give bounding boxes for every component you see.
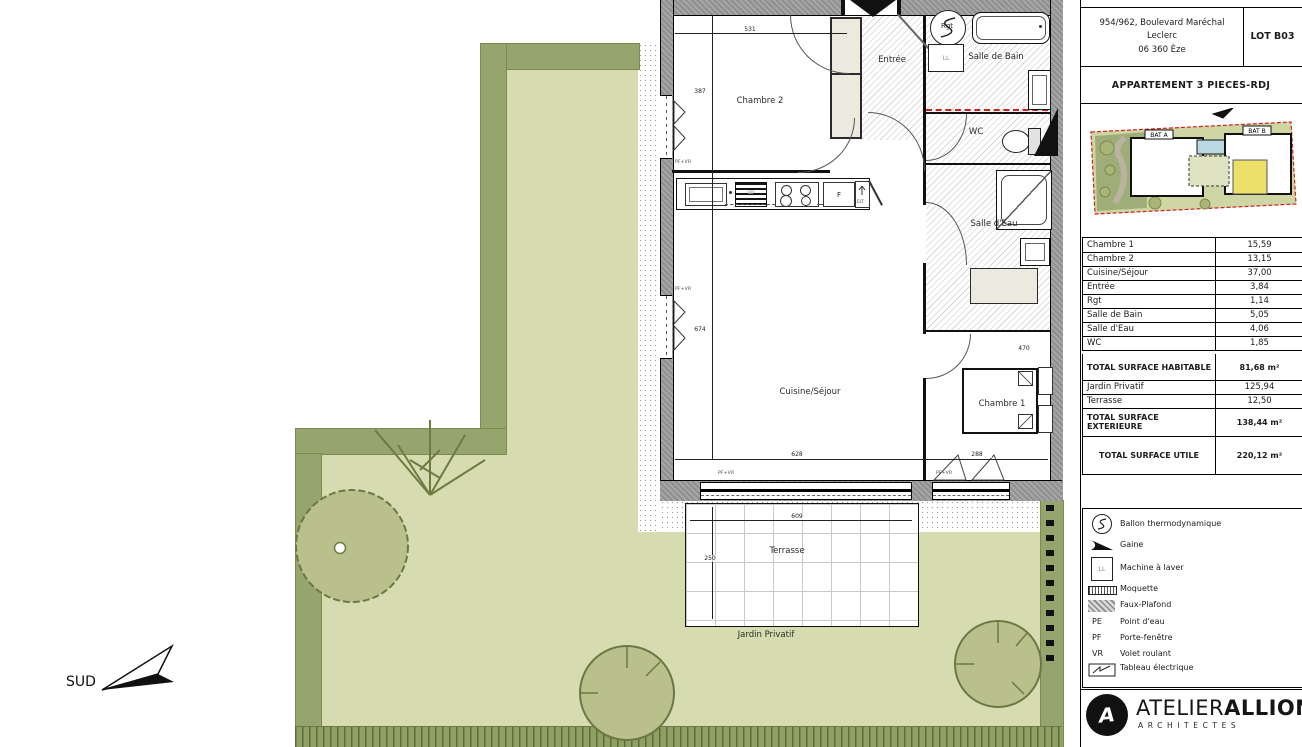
wc-label: WC bbox=[956, 127, 996, 137]
total-utile-row: TOTAL SURFACE UTILE220,12 m² bbox=[1082, 436, 1302, 475]
partition-wc-bottom bbox=[925, 163, 1050, 165]
cuisine-sejour-label: Cuisine/Séjour bbox=[730, 387, 890, 397]
surface-row: WC1,85 bbox=[1082, 336, 1302, 351]
dim-chambre1-w: 288 bbox=[962, 451, 992, 458]
window-tag: PF+VR bbox=[675, 160, 691, 165]
room-area: 12,50 bbox=[1215, 394, 1302, 408]
electrical-panel-legend-icon bbox=[1088, 663, 1116, 677]
legend-label: Porte-fenêtre bbox=[1120, 633, 1173, 642]
legend-label: Gaine bbox=[1120, 540, 1143, 549]
room-name: Salle d'Eau bbox=[1083, 322, 1215, 336]
compass-label: SUD bbox=[66, 674, 96, 690]
surface-row: Chambre 213,15 bbox=[1082, 252, 1302, 267]
shutter-icon bbox=[673, 100, 687, 152]
shutter-icon bbox=[673, 300, 687, 352]
moquette-legend-icon bbox=[1088, 586, 1117, 595]
room-name: Salle de Bain bbox=[1083, 308, 1215, 322]
salle-deau-label: Salle d'Eau bbox=[944, 219, 1044, 229]
dim-line bbox=[675, 33, 847, 34]
entrance-arrow-icon bbox=[850, 0, 896, 17]
toilet bbox=[1002, 130, 1030, 153]
surface-row: Salle d'Eau4,06 bbox=[1082, 322, 1302, 337]
room-area: 4,06 bbox=[1215, 322, 1302, 336]
apartment-title: APPARTEMENT 3 PIECES-RDJ bbox=[1080, 72, 1302, 98]
address-line1: 954/962, Boulevard Maréchal Leclerc bbox=[1086, 17, 1238, 44]
burner-icon bbox=[801, 196, 811, 206]
north-arrow-icon bbox=[1213, 108, 1233, 118]
kitchen-sink bbox=[685, 183, 727, 206]
fridge-label: F bbox=[837, 191, 841, 199]
legend-label: Point d'eau bbox=[1120, 617, 1165, 626]
nightstand bbox=[1038, 367, 1053, 395]
surface-row: Cuisine/Séjour37,00 bbox=[1082, 266, 1302, 281]
total-label: TOTAL SURFACE HABITABLE bbox=[1083, 354, 1215, 380]
fern-icon bbox=[375, 420, 485, 495]
legend-box bbox=[1082, 508, 1302, 688]
room-area: 15,59 bbox=[1215, 238, 1302, 252]
legend-abbr: PF bbox=[1092, 633, 1101, 642]
panel-divider bbox=[1080, 0, 1081, 747]
door-post bbox=[841, 0, 845, 15]
atelier-allione-logo-icon: A bbox=[1086, 694, 1128, 736]
project-address: 954/962, Boulevard Maréchal Leclerc 06 3… bbox=[1086, 14, 1238, 60]
room-name: Terrasse bbox=[1083, 394, 1215, 408]
terrace-label: Terrasse bbox=[747, 546, 827, 556]
burner-icon bbox=[780, 195, 792, 207]
surface-row: Entrée3,84 bbox=[1082, 280, 1302, 295]
bathtub bbox=[972, 12, 1050, 44]
bush-icon bbox=[296, 490, 408, 602]
window-chambre1 bbox=[932, 482, 1010, 500]
dishwasher-label: LV bbox=[736, 190, 766, 196]
arrow-icon bbox=[856, 183, 869, 197]
total-exterieure-row: TOTAL SURFACE EXTERIEURE138,44 m² bbox=[1082, 408, 1302, 437]
total-label: TOTAL SURFACE EXTERIEURE bbox=[1083, 408, 1215, 436]
dim-chambre2-h: 387 bbox=[690, 88, 710, 95]
total-habitable-row: TOTAL SURFACE HABITABLE81,68 m² bbox=[1082, 354, 1302, 381]
logo-name-regular: ATELIER bbox=[1136, 696, 1224, 720]
legend-label: Moquette bbox=[1120, 584, 1158, 593]
dim-sejour-w: 628 bbox=[782, 451, 812, 458]
room-area: 1,85 bbox=[1215, 336, 1302, 350]
room-name: Rgt bbox=[1083, 294, 1215, 308]
pillow bbox=[1018, 371, 1033, 386]
room-area: 13,15 bbox=[1215, 252, 1302, 266]
bat-a-label: BAT A bbox=[1150, 132, 1168, 139]
logo-mark-letter: A bbox=[1098, 702, 1116, 727]
legend-label: Ballon thermodynamique bbox=[1120, 519, 1221, 528]
surface-row: Jardin Privatif125,94 bbox=[1082, 380, 1302, 395]
surface-row: Chambre 115,59 bbox=[1082, 238, 1302, 253]
room-area: 5,05 bbox=[1215, 308, 1302, 322]
wall-west bbox=[660, 0, 674, 500]
address-line2: 06 360 Èze bbox=[1138, 44, 1186, 58]
highlighted-unit bbox=[1233, 160, 1267, 194]
logo-subtitle: ARCHITECTES bbox=[1138, 721, 1240, 730]
legend-label: Tableau électrique bbox=[1120, 663, 1193, 672]
electrical-panel: ELT bbox=[855, 181, 870, 208]
apartment-plan: LV F ELT Rgt LL bbox=[660, 0, 1062, 500]
washing-machine-legend-icon: LL bbox=[1091, 557, 1113, 581]
legend-label: Machine à laver bbox=[1120, 563, 1184, 572]
kitchen-counter: LV F ELT bbox=[676, 178, 870, 210]
window-tag: PF+VR bbox=[675, 287, 691, 292]
room-name: Chambre 2 bbox=[1083, 252, 1215, 266]
water-heater-legend-icon bbox=[1092, 514, 1112, 534]
stove bbox=[775, 182, 819, 207]
terrace-dim-line-h bbox=[690, 520, 912, 521]
bat-b-label: BAT B bbox=[1248, 128, 1265, 135]
chambre1-label: Chambre 1 bbox=[956, 399, 1048, 409]
room-name: WC bbox=[1083, 336, 1215, 350]
burner-icon bbox=[800, 185, 811, 196]
bush-trunk-icon bbox=[335, 543, 346, 554]
lot-number: LOT B03 bbox=[1243, 7, 1302, 66]
legend-label: Faux-Plafond bbox=[1120, 600, 1171, 609]
terrace-dim-line-v bbox=[712, 507, 713, 619]
faucet-dot bbox=[729, 191, 732, 194]
partition-chambre1-top bbox=[925, 330, 1050, 332]
dim-sejour-h: 674 bbox=[690, 326, 710, 333]
legend-abbr: PE bbox=[1092, 617, 1102, 626]
logo-wordmark: ATELIERALLIONE bbox=[1136, 696, 1302, 720]
dim-line bbox=[712, 15, 713, 460]
pillow bbox=[1018, 414, 1033, 429]
electrical-panel-label: ELT bbox=[857, 199, 864, 204]
room-name: Cuisine/Séjour bbox=[1083, 266, 1215, 280]
nightstand bbox=[1038, 405, 1053, 433]
surface-row: Salle de Bain5,05 bbox=[1082, 308, 1302, 323]
sink bbox=[1020, 238, 1050, 266]
pool-icon bbox=[1197, 140, 1227, 154]
terrace-area bbox=[685, 503, 919, 627]
room-area: 1,14 bbox=[1215, 294, 1302, 308]
room-name: Jardin Privatif bbox=[1083, 380, 1215, 394]
garden-label: Jardin Privatif bbox=[711, 630, 821, 640]
salle-de-bain-label: Salle de Bain bbox=[948, 52, 1044, 62]
total-value: 138,44 m² bbox=[1215, 408, 1302, 436]
window-tag: PF+VR bbox=[936, 471, 952, 476]
surface-row: Terrasse12,50 bbox=[1082, 394, 1302, 409]
entree-label: Entrée bbox=[860, 55, 924, 65]
south-arrow-icon bbox=[96, 638, 180, 696]
legend-label: Volet roulant bbox=[1120, 649, 1171, 658]
total-value: 81,68 m² bbox=[1215, 354, 1302, 380]
rgt-label: Rgt bbox=[930, 22, 964, 30]
window-chambre2 bbox=[660, 95, 672, 159]
legend-abbr: VR bbox=[1092, 649, 1103, 658]
floorplan-page: 609 250 Terrasse Jardin Privatif bbox=[0, 0, 1302, 747]
room-name: Entrée bbox=[1083, 280, 1215, 294]
room-area: 125,94 bbox=[1215, 380, 1302, 394]
total-value: 220,12 m² bbox=[1215, 436, 1302, 474]
closet bbox=[970, 268, 1038, 304]
hedge-left-upper bbox=[480, 43, 507, 455]
dim-chambre1-h: 470 bbox=[1012, 345, 1036, 352]
chambre2-label: Chambre 2 bbox=[705, 96, 815, 106]
dim-chambre2-w: 531 bbox=[732, 26, 768, 33]
faux-plafond-legend-icon bbox=[1088, 600, 1115, 612]
total-label: TOTAL SURFACE UTILE bbox=[1083, 436, 1215, 474]
sink bbox=[1028, 70, 1051, 110]
site-plan-thumbnail: BAT A BAT B bbox=[1085, 108, 1302, 234]
gaine-legend-icon bbox=[1090, 538, 1114, 552]
room-area: 3,84 bbox=[1215, 280, 1302, 294]
dim-line bbox=[675, 459, 1048, 460]
room-name: Chambre 1 bbox=[1083, 238, 1215, 252]
window-bay-sejour bbox=[700, 482, 912, 500]
window-tag: PF+VR bbox=[718, 471, 734, 476]
surface-row: Rgt1,14 bbox=[1082, 294, 1302, 309]
fridge: F bbox=[823, 182, 855, 207]
terrace-width-dim: 609 bbox=[782, 513, 812, 520]
terrace-depth-dim: 250 bbox=[698, 555, 722, 562]
logo-name-bold: ALLIONE bbox=[1224, 696, 1302, 720]
window-sejour bbox=[660, 295, 672, 359]
room-area: 37,00 bbox=[1215, 266, 1302, 280]
